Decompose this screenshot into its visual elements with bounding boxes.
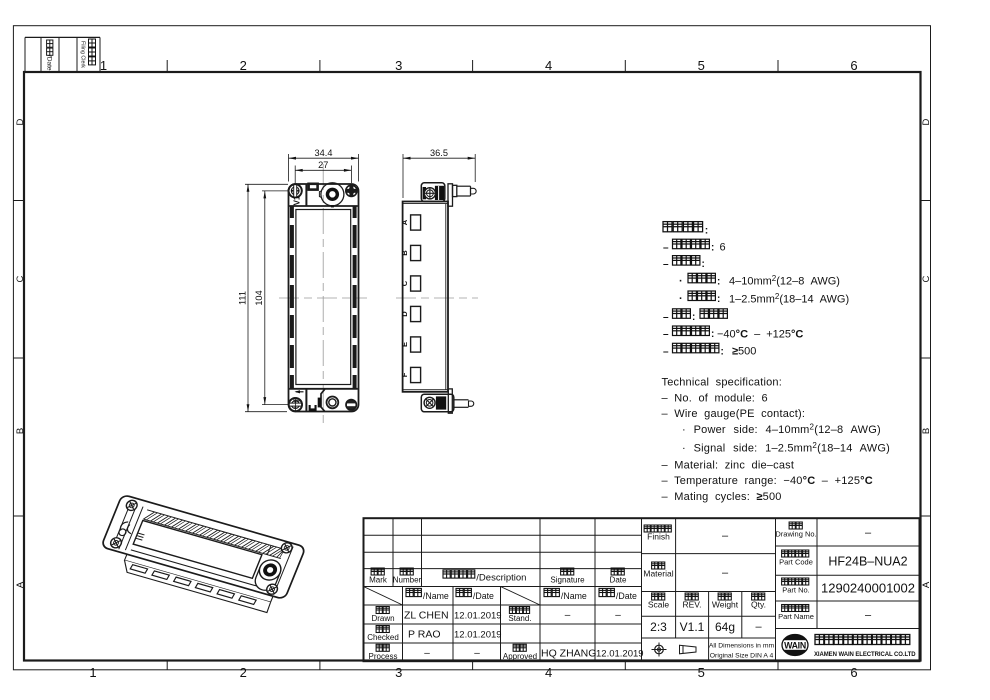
- svg-text:6: 6: [720, 242, 726, 254]
- svg-text:/Date: /Date: [473, 591, 494, 601]
- svg-text:C: C: [400, 280, 409, 286]
- svg-text:– Wire gauge(PE contact):: – Wire gauge(PE contact):: [662, 408, 806, 420]
- svg-text:–: –: [424, 648, 430, 659]
- svg-text::: :: [702, 259, 705, 270]
- svg-text:6: 6: [850, 58, 857, 73]
- svg-text:34.4: 34.4: [315, 148, 333, 158]
- svg-text:Part Code: Part Code: [779, 558, 813, 567]
- svg-text:27: 27: [318, 160, 328, 170]
- svg-text:–: –: [865, 527, 872, 539]
- svg-text:12.01.2019: 12.01.2019: [454, 630, 502, 641]
- svg-text:/Date: /Date: [46, 55, 53, 71]
- svg-text:Finish: Finish: [647, 532, 670, 542]
- svg-text:Material: Material: [643, 569, 673, 579]
- svg-text:HF24B–NUA2: HF24B–NUA2: [828, 555, 907, 569]
- svg-text:P RAO: P RAO: [408, 629, 440, 641]
- svg-text:A: A: [921, 581, 932, 588]
- svg-text:All Dimensions in mm: All Dimensions in mm: [709, 643, 775, 650]
- svg-text:F: F: [293, 397, 302, 402]
- svg-text::: :: [717, 294, 720, 305]
- svg-text:V1: V1: [292, 195, 301, 205]
- svg-text:1–2.5mm2(18–14 AWG): 1–2.5mm2(18–14 AWG): [729, 292, 849, 306]
- svg-text:–: –: [565, 610, 571, 621]
- svg-text:E: E: [400, 342, 409, 347]
- svg-text:· Signal side: 1–2.5mm2(18–14: · Signal side: 1–2.5mm2(18–14 AWG): [682, 441, 890, 455]
- svg-text:12.01.2019: 12.01.2019: [454, 611, 502, 622]
- svg-text:A: A: [400, 219, 409, 225]
- svg-text:Signature: Signature: [550, 576, 585, 585]
- svg-text:–: –: [865, 610, 872, 622]
- svg-text:Scale: Scale: [648, 600, 670, 610]
- svg-text:/Description: /Description: [476, 573, 526, 584]
- svg-text:WAIN: WAIN: [784, 640, 806, 650]
- svg-text:ZL CHEN: ZL CHEN: [404, 610, 449, 622]
- svg-text:B: B: [15, 428, 26, 434]
- svg-text:– Mating cycles: ≥500: – Mating cycles: ≥500: [662, 491, 782, 503]
- svg-text:/Date: /Date: [616, 591, 637, 601]
- svg-text:–: –: [663, 242, 669, 253]
- svg-text::: :: [717, 276, 720, 287]
- svg-text:3: 3: [395, 665, 402, 680]
- svg-text:–: –: [663, 346, 669, 357]
- svg-text:Number: Number: [393, 576, 422, 585]
- svg-text:·: ·: [679, 293, 683, 305]
- svg-text:B: B: [921, 428, 932, 434]
- svg-text:2: 2: [240, 665, 247, 680]
- svg-text:Stand.: Stand.: [508, 614, 531, 623]
- svg-text:Drawn: Drawn: [371, 614, 394, 623]
- svg-text::: :: [705, 224, 709, 236]
- svg-text:XIAMEN WAIN ELECTRICAL CO.LTD: XIAMEN WAIN ELECTRICAL CO.LTD: [814, 652, 916, 658]
- svg-text:D: D: [15, 118, 26, 125]
- svg-text:Process: Process: [369, 652, 398, 661]
- svg-text::: :: [692, 312, 695, 323]
- svg-text:/Name: /Name: [561, 591, 587, 601]
- svg-text:C: C: [921, 275, 932, 282]
- svg-text:Weight: Weight: [712, 600, 739, 610]
- svg-text:Qty.: Qty.: [751, 600, 766, 610]
- svg-text::: :: [711, 242, 714, 253]
- svg-text:– Material: zinc die–cast: – Material: zinc die–cast: [662, 460, 795, 472]
- svg-text:4: 4: [545, 665, 552, 680]
- svg-text:/Name: /Name: [423, 591, 449, 601]
- svg-text:REV.: REV.: [682, 600, 701, 610]
- svg-text:6: 6: [850, 665, 857, 680]
- svg-text:36.5: 36.5: [430, 148, 448, 158]
- svg-text:Part No.: Part No.: [782, 586, 810, 595]
- svg-text:–: –: [722, 567, 729, 579]
- svg-text:4: 4: [545, 58, 552, 73]
- svg-text:2: 2: [240, 58, 247, 73]
- svg-text:≥500: ≥500: [732, 346, 756, 358]
- svg-text:D: D: [400, 311, 409, 317]
- svg-text:3: 3: [395, 58, 402, 73]
- svg-text:HQ ZHANG: HQ ZHANG: [541, 648, 596, 660]
- svg-text:–: –: [722, 530, 729, 542]
- svg-text:·: ·: [679, 275, 683, 287]
- svg-text:Technical specification:: Technical specification:: [662, 377, 783, 389]
- svg-text:–: –: [474, 648, 480, 659]
- svg-text:– Temperature range: −40°C – +: – Temperature range: −40°C – +125°C: [662, 475, 873, 487]
- svg-text:Drawing No.: Drawing No.: [775, 530, 816, 539]
- svg-text:–: –: [663, 312, 669, 323]
- svg-text:5: 5: [698, 665, 705, 680]
- svg-text:–: –: [663, 259, 669, 270]
- svg-text:Checked: Checked: [367, 633, 399, 642]
- svg-text:A: A: [15, 581, 26, 588]
- svg-text:D: D: [921, 118, 932, 125]
- svg-text:−40°C – +125°C: −40°C – +125°C: [717, 328, 803, 340]
- svg-text:Date: Date: [610, 576, 627, 585]
- svg-text:Approved: Approved: [503, 652, 537, 661]
- svg-text:Filing Clerk: Filing Clerk: [80, 41, 86, 68]
- svg-text:F: F: [400, 372, 409, 377]
- svg-text:–: –: [615, 610, 621, 621]
- svg-text:–: –: [663, 329, 669, 340]
- svg-text:· Power side: 4–10mm2(12–8 AWG: · Power side: 4–10mm2(12–8 AWG): [682, 423, 881, 437]
- svg-text:B: B: [400, 250, 409, 256]
- svg-text:4–10mm2(12–8 AWG): 4–10mm2(12–8 AWG): [729, 274, 840, 288]
- svg-text:C: C: [15, 275, 26, 282]
- svg-text:5: 5: [698, 58, 705, 73]
- svg-text:104: 104: [254, 290, 264, 305]
- svg-text:Mark: Mark: [369, 576, 388, 585]
- svg-text:2:3: 2:3: [650, 620, 667, 634]
- svg-text:Part Name: Part Name: [778, 612, 814, 621]
- svg-text::: :: [711, 329, 714, 340]
- svg-text:1: 1: [89, 665, 96, 680]
- svg-text:Original Size DIN A 4: Original Size DIN A 4: [710, 653, 774, 660]
- svg-text:–: –: [755, 621, 762, 633]
- svg-text:111: 111: [237, 291, 247, 305]
- svg-text::: :: [721, 346, 724, 357]
- svg-text:1: 1: [100, 58, 107, 73]
- svg-text:– No. of module: 6: – No. of module: 6: [662, 393, 768, 405]
- svg-text:V1.1: V1.1: [680, 620, 705, 634]
- svg-text:64g: 64g: [715, 620, 735, 634]
- svg-text:12.01.2019: 12.01.2019: [596, 649, 644, 660]
- svg-text:1290240001002: 1290240001002: [821, 581, 915, 596]
